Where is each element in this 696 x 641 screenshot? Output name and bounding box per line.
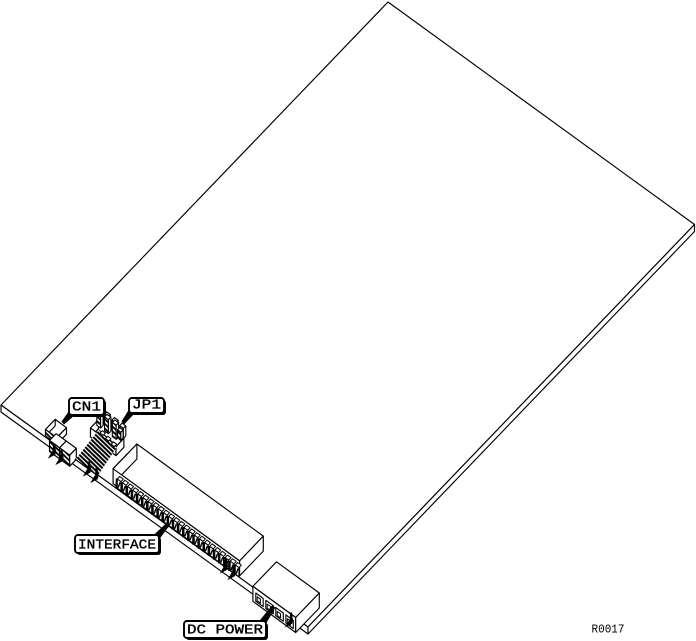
svg-text:JP1: JP1 — [132, 398, 161, 414]
svg-text:R0017: R0017 — [592, 623, 625, 637]
svg-text:CN1: CN1 — [72, 400, 101, 416]
svg-text:DC POWER: DC POWER — [187, 623, 264, 639]
svg-text:INTERFACE: INTERFACE — [78, 538, 156, 554]
